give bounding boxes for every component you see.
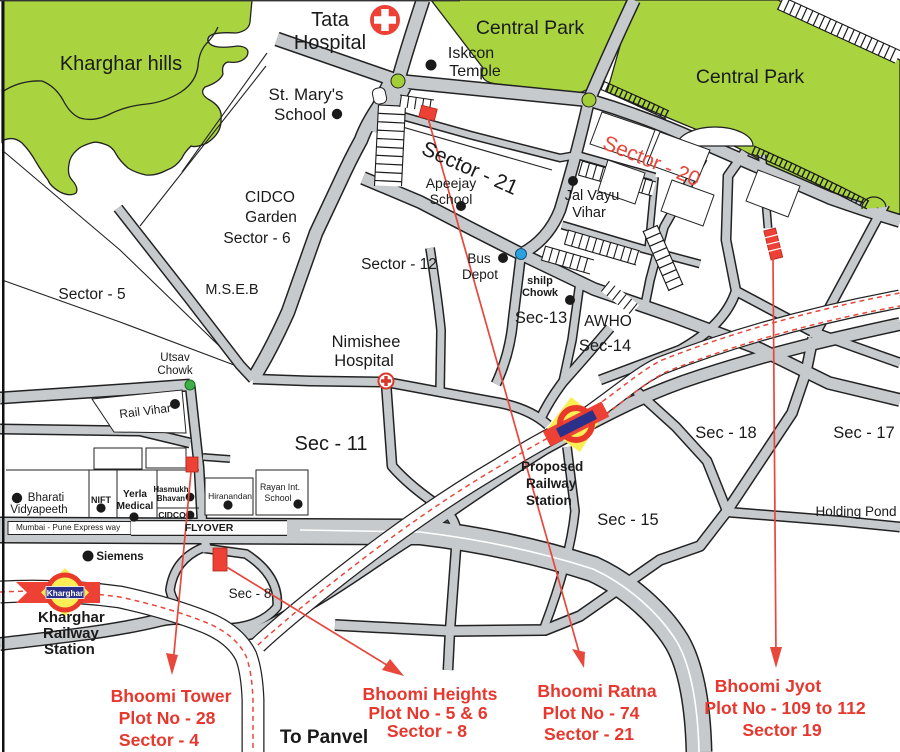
svg-text:Plot No - 109 to 112: Plot No - 109 to 112 <box>704 698 866 718</box>
svg-text:Garden: Garden <box>245 209 297 226</box>
svg-text:St. Mary's: St. Mary's <box>268 85 343 104</box>
svg-text:Yerla: Yerla <box>123 489 147 500</box>
svg-text:Station: Station <box>44 641 95 658</box>
svg-text:Mumbai - Pune Express way: Mumbai - Pune Express way <box>16 523 121 532</box>
svg-text:Hiranandani: Hiranandani <box>208 491 254 501</box>
svg-text:Plot No - 74: Plot No - 74 <box>543 703 640 723</box>
svg-text:Bhoomi Ratna: Bhoomi Ratna <box>537 681 656 701</box>
svg-text:Utsav: Utsav <box>160 352 190 364</box>
svg-text:Rayan Int.: Rayan Int. <box>260 482 300 492</box>
svg-text:Sec - 15: Sec - 15 <box>597 511 658 529</box>
svg-text:AWHO: AWHO <box>584 313 632 330</box>
svg-text:Sec-13: Sec-13 <box>515 309 567 327</box>
svg-text:School: School <box>274 105 326 124</box>
svg-text:Bhavan: Bhavan <box>157 494 185 503</box>
svg-text:Sector - 12: Sector - 12 <box>361 256 437 273</box>
svg-text:Kharghar: Kharghar <box>47 589 84 598</box>
svg-text:Bhoomi Heights: Bhoomi Heights <box>363 684 498 704</box>
svg-text:Central Park: Central Park <box>696 66 805 88</box>
svg-text:Tata: Tata <box>311 9 350 31</box>
svg-text:Hospital: Hospital <box>294 32 366 54</box>
svg-text:School: School <box>430 191 473 207</box>
svg-text:Station: Station <box>526 493 572 508</box>
svg-text:Hospital: Hospital <box>334 352 394 370</box>
svg-text:Siemens: Siemens <box>96 551 143 563</box>
svg-text:Sector - 21: Sector - 21 <box>544 724 634 744</box>
svg-text:Chowk: Chowk <box>522 287 559 299</box>
svg-text:CIDCO: CIDCO <box>158 510 186 520</box>
svg-text:Sec - 11: Sec - 11 <box>295 433 368 455</box>
svg-text:Proposed: Proposed <box>521 459 583 474</box>
svg-text:Vihar: Vihar <box>572 205 606 221</box>
svg-text:Apeejay: Apeejay <box>426 175 477 191</box>
svg-text:Kharghar: Kharghar <box>38 609 105 626</box>
svg-text:Bhoomi Tower: Bhoomi Tower <box>111 686 232 706</box>
svg-text:Vidyapeeth: Vidyapeeth <box>10 504 67 516</box>
svg-text:Holding Pond: Holding Pond <box>815 504 896 519</box>
svg-text:M.S.E.B: M.S.E.B <box>205 282 258 298</box>
svg-text:Sec - 17: Sec - 17 <box>833 424 894 442</box>
svg-text:Sec - 8: Sec - 8 <box>229 586 272 601</box>
svg-text:Sector 19: Sector 19 <box>742 720 821 740</box>
svg-text:Chowk: Chowk <box>157 365 192 377</box>
svg-text:Plot No - 28: Plot No - 28 <box>119 708 216 728</box>
svg-text:School: School <box>265 493 292 503</box>
svg-text:Bharati: Bharati <box>28 492 64 504</box>
svg-text:FLYOVER: FLYOVER <box>185 522 234 534</box>
svg-text:Kharghar hills: Kharghar hills <box>60 53 182 75</box>
svg-text:Railway: Railway <box>526 476 577 491</box>
svg-text:Central Park: Central Park <box>476 17 585 39</box>
svg-text:Iskcon: Iskcon <box>448 45 494 62</box>
svg-text:Nimishee: Nimishee <box>332 333 401 351</box>
svg-text:Jal Vayu: Jal Vayu <box>565 188 620 204</box>
svg-text:Bhoomi Jyot: Bhoomi Jyot <box>715 676 822 696</box>
svg-text:NIFT: NIFT <box>91 495 111 505</box>
svg-text:Sec - 18: Sec - 18 <box>695 424 756 442</box>
svg-text:Medical: Medical <box>117 501 154 512</box>
svg-text:To Panvel: To Panvel <box>280 727 368 748</box>
svg-text:CIDCO: CIDCO <box>245 189 295 206</box>
svg-text:Sector - 8: Sector - 8 <box>387 721 467 741</box>
svg-text:shilp: shilp <box>527 275 553 287</box>
svg-text:Depot: Depot <box>462 267 498 282</box>
svg-text:Sector - 4: Sector - 4 <box>119 730 199 750</box>
svg-text:Railway: Railway <box>43 625 100 642</box>
svg-text:Plot No - 5 & 6: Plot No - 5 & 6 <box>368 703 487 723</box>
svg-text:Sector - 6: Sector - 6 <box>223 230 290 247</box>
svg-text:Bus: Bus <box>467 251 491 266</box>
svg-text:Temple: Temple <box>449 63 501 80</box>
svg-text:Sector - 5: Sector - 5 <box>58 286 125 303</box>
svg-text:Sec-14: Sec-14 <box>579 337 631 355</box>
svg-text:Hasmukh: Hasmukh <box>153 485 188 494</box>
